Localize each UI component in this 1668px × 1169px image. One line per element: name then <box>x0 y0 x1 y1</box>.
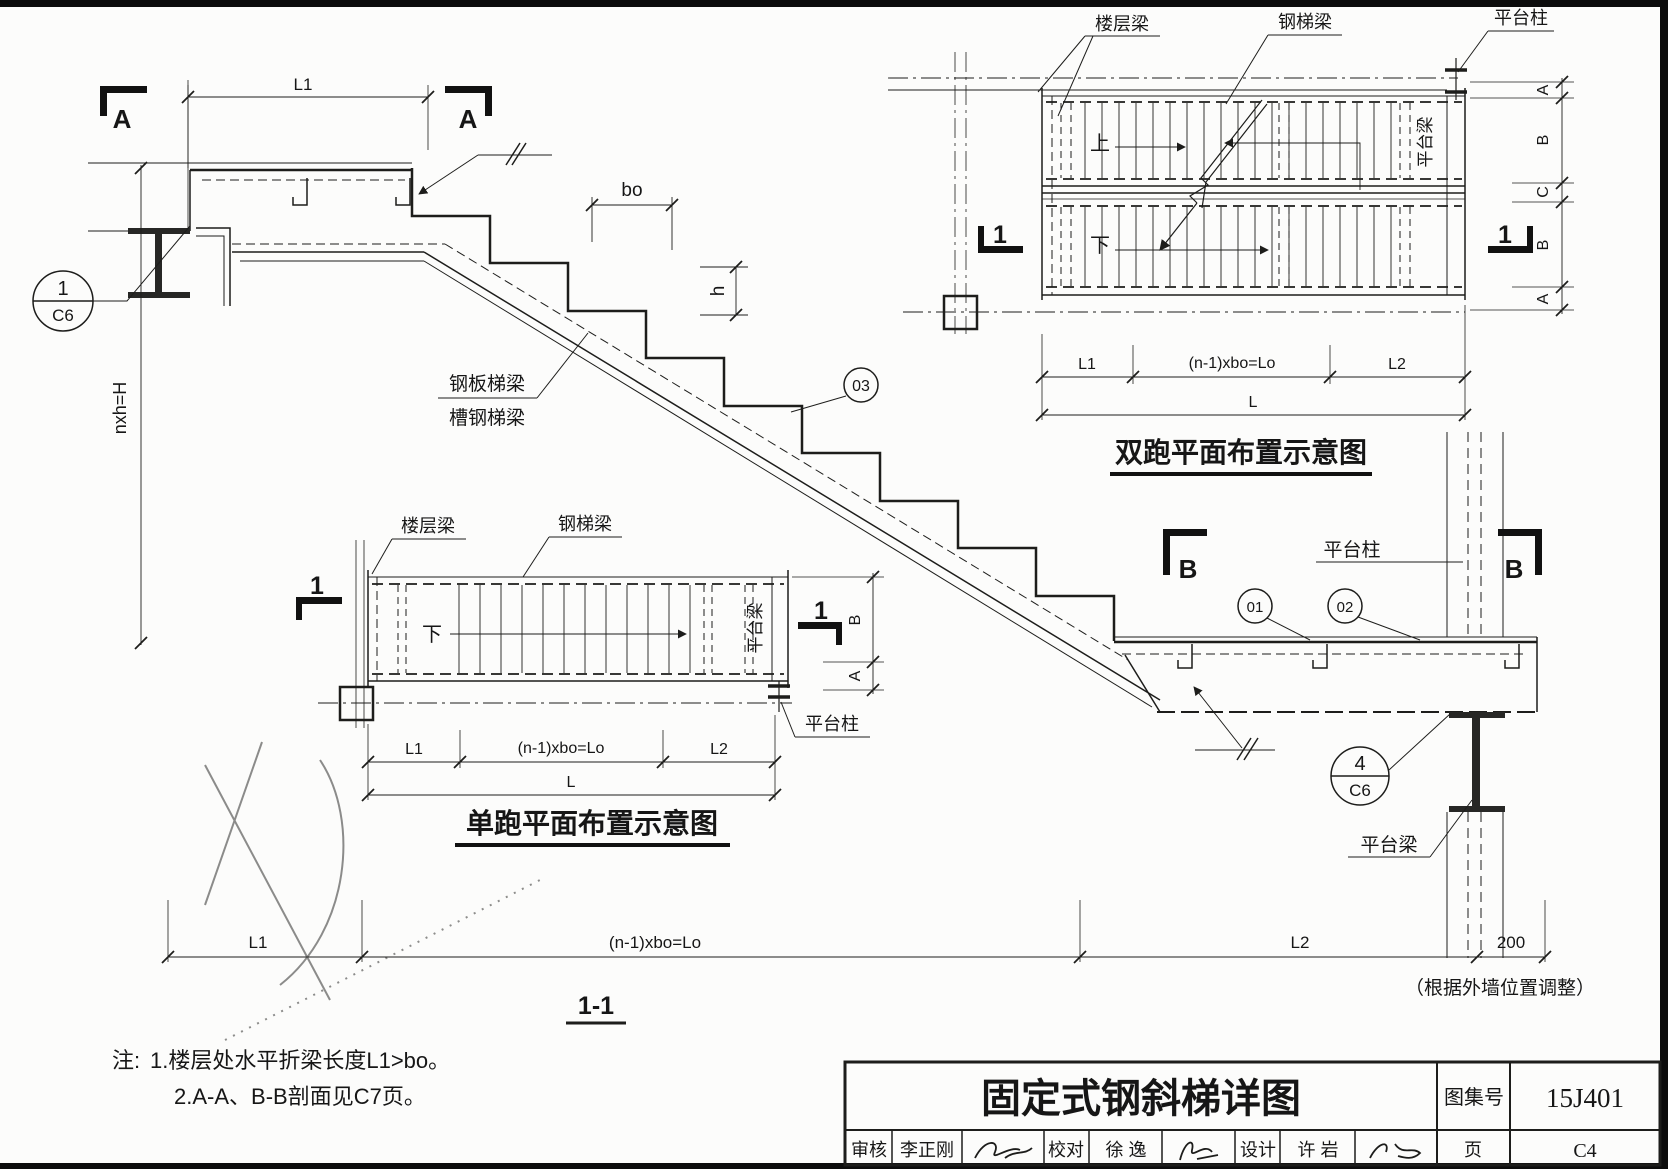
svg-text:1-1: 1-1 <box>578 992 614 1020</box>
detail-bubble-1-C6: 1 C6 <box>33 226 190 331</box>
detail-page: C6 <box>52 306 74 325</box>
platform-beam-label: 平台梁 <box>1416 117 1435 168</box>
wall-note: （根据外墙位置调整） <box>1405 977 1595 999</box>
review-label: 审核 <box>851 1140 887 1160</box>
svg-text:单跑平面布置示意图: 单跑平面布置示意图 <box>466 807 718 839</box>
dim-bottom-string: L1 (n-1)xbo=Lo L2 200 （根据外墙位置调整） <box>168 900 1595 999</box>
plan-section-mark-1-right: 1 <box>1488 221 1533 253</box>
svg-text:(n-1)xbo=Lo: (n-1)xbo=Lo <box>1189 355 1276 372</box>
title-block: 固定式钢斜梯详图 图集号 15J401 审核 李正刚 校对 徐 逸 设计 许 岩… <box>845 1062 1660 1165</box>
section-letter: A <box>459 104 478 134</box>
floor-beam-label: 楼层梁 <box>372 516 466 574</box>
detail-number: 4 <box>1354 753 1365 775</box>
dim-height: nxh=H <box>110 165 141 645</box>
design-label: 设计 <box>1240 1140 1276 1160</box>
drawing-sheet: 1 C6 4 C6 03 01 02 <box>0 0 1668 1169</box>
section-mark-B-right: B <box>1498 529 1542 584</box>
svg-text:L1: L1 <box>405 741 423 758</box>
detail-number: 1 <box>57 278 68 300</box>
svg-text:L2: L2 <box>710 741 728 758</box>
bent-plate <box>196 228 230 306</box>
dim-bo: bo <box>592 180 672 250</box>
hidden-tread-pairs <box>398 585 753 673</box>
svg-text:C: C <box>1535 186 1552 198</box>
top-landing <box>88 80 412 232</box>
dim-text: (n-1)xbo=Lo <box>609 933 701 952</box>
signature-reviewer <box>975 1143 1032 1158</box>
dim-text: bo <box>621 180 642 201</box>
note-line-2: 2.A-A、B-B剖面见C7页。 <box>174 1084 426 1109</box>
page-number: C4 <box>1573 1140 1596 1162</box>
svg-text:L: L <box>1249 394 1258 411</box>
platform-column-label-section: 平台柱 <box>1316 539 1463 562</box>
svg-text:(n-1)xbo=Lo: (n-1)xbo=Lo <box>518 740 605 757</box>
break-symbol-bottom <box>1194 687 1275 760</box>
platform-column-label: 平台柱 <box>781 702 870 737</box>
section-mark-A-left: A <box>100 86 147 134</box>
column-square <box>944 296 977 329</box>
section-mark-B-left: B <box>1163 529 1207 584</box>
svg-text:平台柱: 平台柱 <box>1494 8 1548 28</box>
double-run-plan: 上 下 平台梁 楼层梁 钢梯梁 平 <box>888 8 1574 476</box>
plan-bottom-dims: L1 (n-1)xbo=Lo L2 L <box>368 715 775 800</box>
svg-text:1: 1 <box>310 572 324 600</box>
svg-text:平台柱: 平台柱 <box>805 714 859 734</box>
reviewer-name: 李正刚 <box>900 1140 954 1160</box>
treads <box>459 585 690 673</box>
ref-number: 03 <box>852 378 870 395</box>
svg-text:楼层梁: 楼层梁 <box>401 516 455 536</box>
svg-text:A: A <box>1535 293 1552 304</box>
ref-bubble-02: 02 <box>1328 589 1420 640</box>
check-label: 校对 <box>1048 1140 1084 1160</box>
notes: 注: 1.楼层处水平折梁长度L1>bo。 2.A-A、B-B剖面见C7页。 <box>112 1048 450 1109</box>
atlas-number: 15J401 <box>1546 1083 1624 1113</box>
dim-text: nxh=H <box>110 382 130 435</box>
break-symbol-top <box>419 143 552 194</box>
section-mark-A-right: A <box>445 86 492 134</box>
page-label: 页 <box>1464 1140 1482 1160</box>
checker-name: 徐 逸 <box>1105 1140 1146 1160</box>
side-dim-string: A B C B A <box>1470 78 1574 314</box>
section-letter: B <box>1505 554 1524 584</box>
svg-text:1: 1 <box>993 221 1007 249</box>
svg-text:L: L <box>567 774 576 791</box>
grating-hook <box>1178 644 1192 668</box>
column-square <box>340 687 373 720</box>
atlas-label: 图集号 <box>1444 1086 1504 1109</box>
svg-text:1: 1 <box>1498 221 1512 249</box>
direction-arrow: 下 <box>422 624 686 646</box>
plan-section-mark-1-left: 1 <box>296 572 342 620</box>
svg-text:平台柱: 平台柱 <box>1323 539 1380 561</box>
svg-text:B: B <box>847 615 864 626</box>
stair-beam-label: 钢梯梁 <box>523 514 622 577</box>
grating-hook <box>1313 644 1327 668</box>
plan-section-mark-1-left: 1 <box>978 221 1023 253</box>
svg-text:A: A <box>847 670 864 681</box>
svg-text:楼层梁: 楼层梁 <box>1095 14 1149 34</box>
platform-beam-section <box>1449 712 1505 812</box>
svg-text:平台梁: 平台梁 <box>1360 834 1417 856</box>
bottom-landing <box>1114 637 1537 712</box>
platform-column-label: 平台柱 <box>1458 8 1554 72</box>
wall-lines <box>1447 432 1503 958</box>
ref-bubble-03: 03 <box>791 368 878 412</box>
dim-text: 200 <box>1497 933 1525 952</box>
steps-profile <box>412 168 1114 641</box>
designer-name: 许 岩 <box>1297 1140 1338 1160</box>
svg-text:B: B <box>1535 135 1552 146</box>
dim-top-L1: L1 <box>188 75 428 168</box>
section-letter: A <box>113 104 132 134</box>
floor-beam-label: 楼层梁 <box>1038 14 1160 116</box>
faded-stamp <box>205 742 540 1040</box>
up-label: 上 <box>1090 132 1110 155</box>
hidden-tread-pairs <box>1061 103 1410 286</box>
detail-bubble-4-C6: 4 C6 <box>1331 714 1450 805</box>
grating-hook <box>396 178 410 205</box>
dim-h: h <box>700 267 748 315</box>
signature-designer <box>1370 1144 1420 1158</box>
channel-stringer-label: 槽钢梯梁 <box>449 407 525 429</box>
plan-title: 单跑平面布置示意图 <box>455 807 730 847</box>
dim-text: h <box>708 286 729 297</box>
dimension-ticks <box>135 76 1568 963</box>
signature-checker <box>1180 1143 1218 1160</box>
svg-text:1: 1 <box>814 597 828 625</box>
ref-bubble-01: 01 <box>1238 589 1310 640</box>
ref-number: 02 <box>1337 599 1354 616</box>
platform-column-symbol <box>768 681 790 712</box>
plan-bottom-dims: L1 (n-1)xbo=Lo L2 L <box>1042 305 1465 420</box>
svg-text:钢梯梁: 钢梯梁 <box>1278 12 1332 32</box>
svg-text:L1: L1 <box>1078 356 1096 373</box>
drawing-canvas: 1 C6 4 C6 03 01 02 <box>0 0 1668 1169</box>
single-run-plan: 下 平台梁 楼层梁 钢梯梁 平台柱 1 <box>296 514 884 847</box>
plan-title: 双跑平面布置示意图 <box>1110 436 1372 476</box>
svg-text:钢梯梁: 钢梯梁 <box>558 514 612 534</box>
svg-text:A: A <box>1535 84 1552 95</box>
down-label: 下 <box>422 624 442 646</box>
detail-page: C6 <box>1349 781 1371 800</box>
note-line-1: 1.楼层处水平折梁长度L1>bo。 <box>150 1048 450 1073</box>
sheet-title: 固定式钢斜梯详图 <box>981 1077 1301 1121</box>
grating-hook <box>1505 644 1519 668</box>
stringer-bevel <box>1125 655 1160 712</box>
down-label: 下 <box>1090 235 1110 257</box>
plan-outline <box>1042 88 1465 300</box>
svg-text:双跑平面布置示意图: 双跑平面布置示意图 <box>1115 436 1367 468</box>
ref-number: 01 <box>1247 599 1264 616</box>
grating-hook <box>293 178 307 205</box>
dim-text: L1 <box>249 933 268 952</box>
svg-text:L2: L2 <box>1388 356 1406 373</box>
platform-beam-label: 平台梁 <box>746 603 765 654</box>
dim-text: L1 <box>294 75 313 94</box>
svg-text:B: B <box>1535 240 1552 251</box>
plan-section-mark-1-right: 1 <box>798 597 842 645</box>
section-letter: B <box>1179 554 1198 584</box>
view-title-1-1: 1-1 <box>566 992 626 1023</box>
treads-lower-flight <box>1085 207 1391 286</box>
dim-text: L2 <box>1291 933 1310 952</box>
notes-prefix: 注: <box>112 1048 140 1073</box>
steel-plate-stringer-label: 钢板梯梁 <box>449 373 525 395</box>
